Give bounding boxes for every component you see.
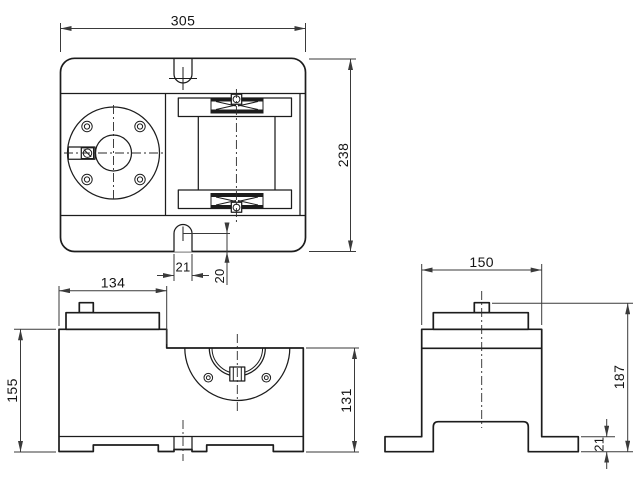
- drawing-sheet: 305 238 21 20: [0, 0, 640, 480]
- front-view: [59, 303, 303, 461]
- dim-label-side-top-width: 150: [469, 254, 494, 270]
- side-view: [385, 291, 578, 452]
- front-view-dimensions: 134 155 131: [4, 275, 359, 453]
- bowl-hole-right: [262, 373, 271, 382]
- dim-label-front-right-height: 131: [338, 388, 354, 413]
- engineering-drawing: 305 238 21 20: [0, 0, 640, 480]
- dim-label-slot-width: 21: [175, 260, 190, 275]
- dim-label-slot-offset: 20: [212, 268, 227, 283]
- front-top-nub: [79, 303, 93, 313]
- top-view: [61, 58, 306, 252]
- flange: [64, 105, 163, 201]
- dim-label-front-total-height: 155: [4, 378, 20, 403]
- bearing-bottom: [211, 193, 263, 212]
- dim-label-side-foot-height: 21: [592, 437, 607, 452]
- dim-label-side-total-height: 187: [611, 365, 627, 390]
- dim-label-front-block-width: 134: [101, 275, 126, 291]
- dim-label-top-depth: 238: [335, 143, 351, 168]
- side-top-block: [433, 313, 528, 330]
- cradle-bowl: [185, 334, 290, 414]
- bearing-assembly: [178, 89, 291, 222]
- top-view-dimensions: 305 238 21 20: [61, 13, 357, 286]
- bearing-top: [211, 94, 263, 113]
- bowl-hole-left: [204, 373, 213, 382]
- dim-label-top-width: 305: [171, 13, 196, 29]
- front-body-outline: [59, 329, 303, 451]
- side-view-dimensions: 150 187 21: [422, 254, 633, 469]
- front-top-block: [66, 313, 159, 330]
